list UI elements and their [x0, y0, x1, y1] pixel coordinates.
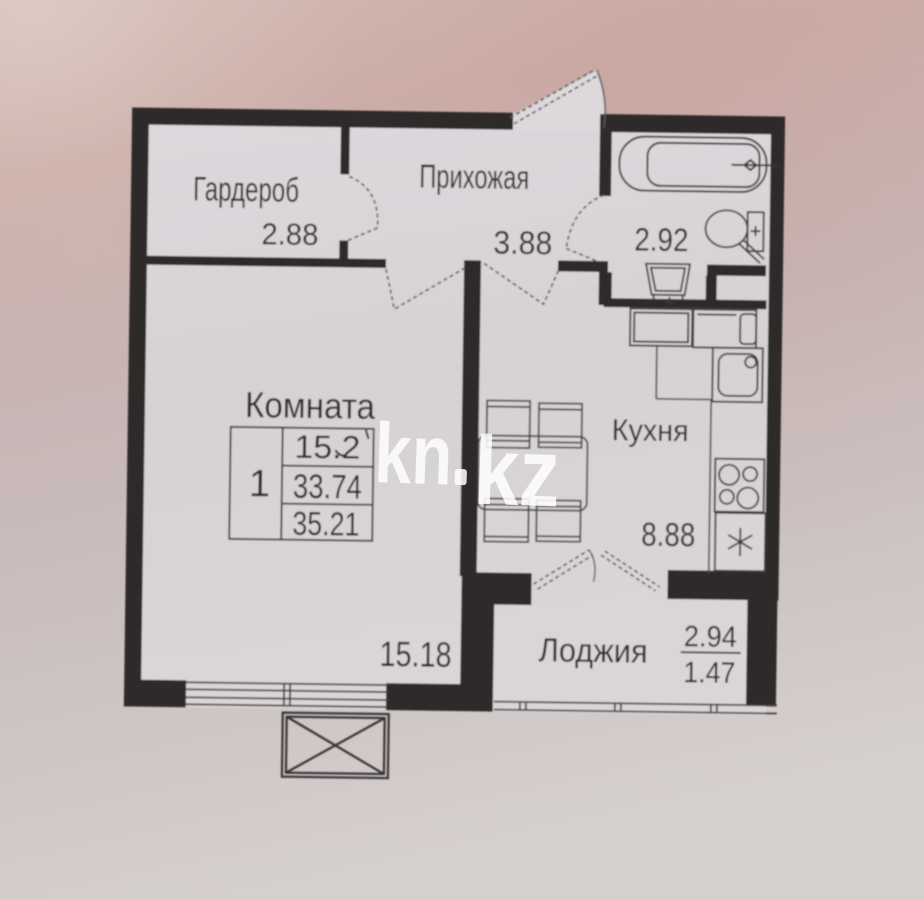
svg-text:1.47: 1.47	[683, 656, 735, 690]
svg-text:3.88: 3.88	[493, 225, 552, 262]
svg-text:15.2: 15.2	[294, 429, 360, 466]
svg-text:kz: kz	[472, 416, 562, 528]
svg-text:Прихожая: Прихожая	[419, 157, 530, 196]
svg-text:Лоджия: Лоджия	[538, 631, 648, 670]
svg-text:35.21: 35.21	[292, 505, 360, 543]
svg-text:33.74: 33.74	[293, 468, 363, 507]
svg-text:15.18: 15.18	[379, 635, 452, 675]
svg-text:8.88: 8.88	[641, 516, 696, 554]
svg-text:Комната: Комната	[245, 384, 376, 427]
svg-text:1: 1	[249, 463, 271, 505]
svg-text:2.92: 2.92	[634, 221, 688, 258]
svg-text:Кухня: Кухня	[611, 412, 688, 448]
svg-text:kn: kn	[373, 406, 454, 504]
svg-text:2.88: 2.88	[261, 216, 318, 252]
svg-text:2.94: 2.94	[684, 620, 737, 654]
svg-text:Гардероб: Гардероб	[193, 170, 300, 209]
